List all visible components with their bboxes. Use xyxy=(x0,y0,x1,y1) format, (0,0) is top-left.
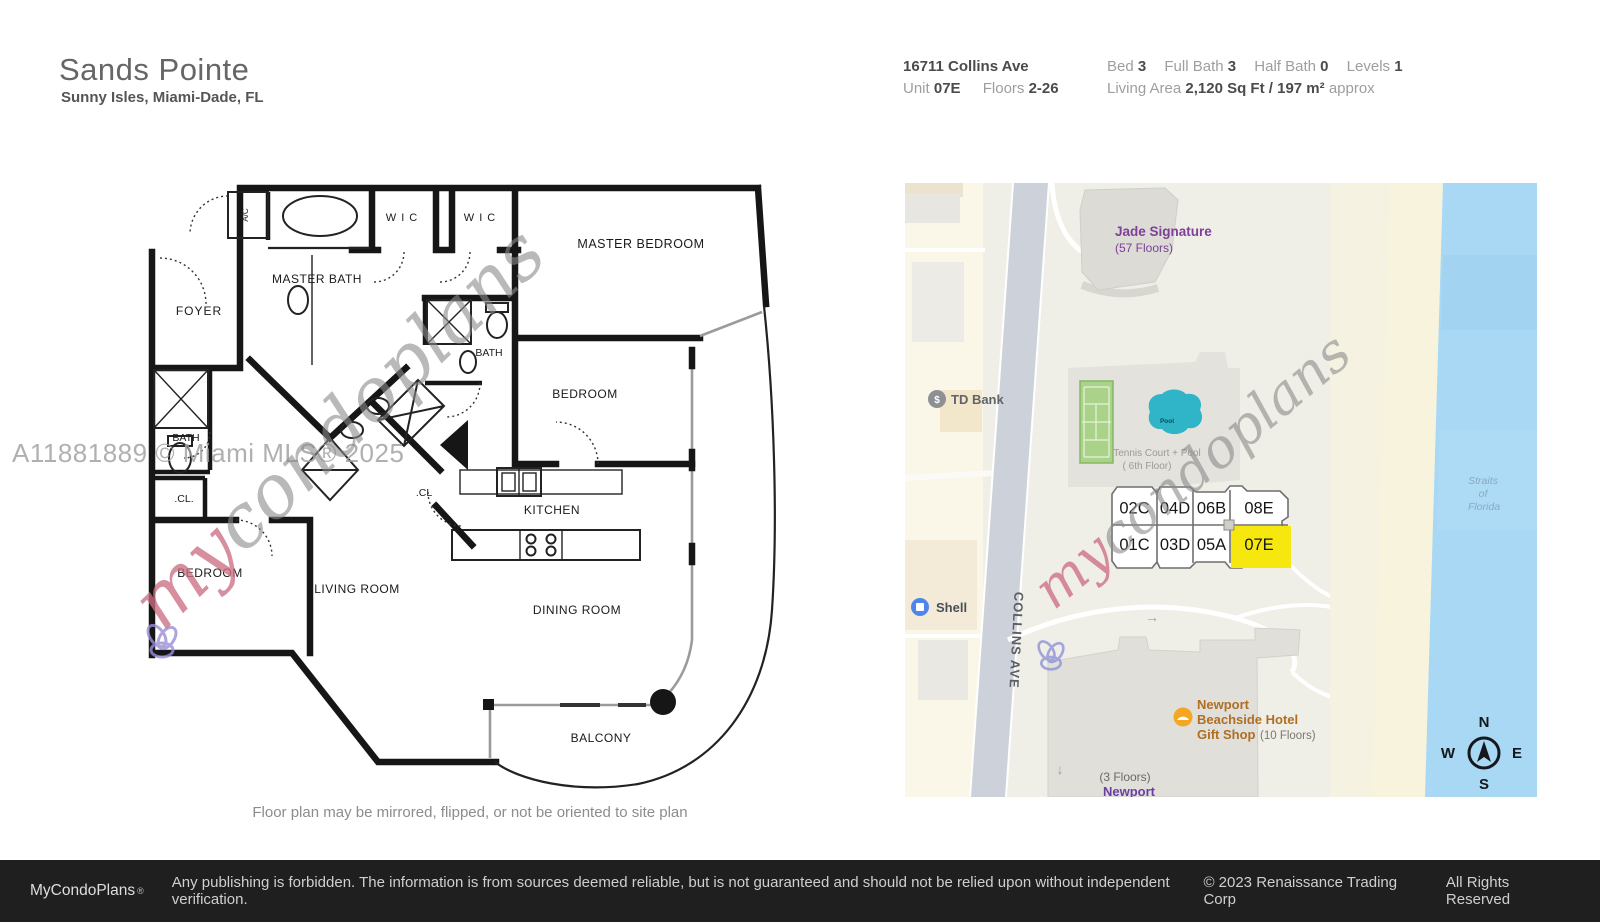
label: of xyxy=(1479,488,1489,500)
label: MASTER BATH xyxy=(272,272,362,286)
living-area-separator: / xyxy=(1269,80,1273,97)
footer-copyright: © 2023 Renaissance Trading Corp xyxy=(1203,874,1423,908)
label: BALCONY xyxy=(571,731,632,745)
label: TD Bank xyxy=(951,392,1005,407)
floors-label: Floors xyxy=(983,80,1025,97)
footer-brand: MyCondoPlans xyxy=(30,882,135,900)
burner xyxy=(527,547,536,556)
label: Pool xyxy=(1160,418,1174,425)
label: E xyxy=(1512,745,1522,762)
full-bath-value: 3 xyxy=(1228,58,1236,75)
unit-cell-label: 02C xyxy=(1119,500,1149,518)
label: Newport xyxy=(1103,784,1156,797)
label: N xyxy=(1479,714,1490,731)
label: Shell xyxy=(936,600,967,615)
unit-cell-label: 08E xyxy=(1244,500,1273,518)
label: BATH xyxy=(475,347,502,359)
sink xyxy=(460,351,476,373)
label: $ xyxy=(934,395,940,406)
registered-mark: ® xyxy=(137,886,144,896)
label: ↓ xyxy=(1057,761,1064,777)
wall-fill xyxy=(440,420,468,470)
label: Straits xyxy=(1468,475,1499,487)
footer-disclaimer: Any publishing is forbidden. The informa… xyxy=(172,874,1204,908)
vanity-sink xyxy=(341,422,363,438)
sink xyxy=(288,286,308,314)
living-area-approx: approx xyxy=(1329,80,1375,97)
balcony-post xyxy=(483,699,494,710)
label: MASTER BEDROOM xyxy=(577,237,704,251)
toilet-tank xyxy=(486,303,508,312)
living-area-value: 2,120 Sq Ft xyxy=(1185,80,1264,97)
label: Tennis Court + Pool xyxy=(1113,448,1201,459)
floorplan-walls xyxy=(152,188,766,762)
balcony-outline xyxy=(495,306,775,787)
burner xyxy=(547,535,556,544)
mls-watermark: A11881889 © Miami MLS® 2025 xyxy=(12,438,404,469)
label: (3 Floors) xyxy=(1099,770,1150,784)
label: Newport xyxy=(1197,697,1250,712)
label: BEDROOM xyxy=(552,387,618,401)
fridge-door xyxy=(523,473,536,491)
living-area-label: Living Area xyxy=(1107,80,1181,97)
floor-plan: MASTER BEDROOMMASTER BATHW I CW I CA/CFO… xyxy=(140,180,800,812)
floors-value: 2-26 xyxy=(1029,80,1059,97)
unit-value: 07E xyxy=(934,80,961,97)
shower-x xyxy=(427,300,471,344)
angled-closet xyxy=(378,380,444,446)
label: (10 Floors) xyxy=(1260,730,1316,742)
label: S xyxy=(1479,776,1489,793)
elevator-core xyxy=(1224,520,1234,530)
burner xyxy=(527,535,536,544)
label: → xyxy=(1145,609,1159,625)
unit-cell-label: 05A xyxy=(1197,536,1226,554)
label: W xyxy=(1441,745,1456,762)
full-bath-label: Full Bath xyxy=(1164,58,1223,75)
balcony-column xyxy=(650,689,676,715)
bed-label: Bed xyxy=(1107,58,1134,75)
label: .CL. xyxy=(174,493,193,505)
label: ( 6th Floor) xyxy=(1123,461,1172,472)
label: (57 Floors) xyxy=(1115,241,1173,255)
room-labels: MASTER BEDROOMMASTER BATHW I CW I CA/CFO… xyxy=(172,208,704,745)
unit-cell-label: 03D xyxy=(1160,536,1190,554)
label: DINING ROOM xyxy=(533,603,621,617)
address-block: 16711 Collins Ave Unit 07E Floors 2-26 xyxy=(903,56,1059,100)
page-subtitle: Sunny Isles, Miami-Dade, FL xyxy=(61,89,264,106)
shower-x xyxy=(154,370,208,428)
label: Beachside Hotel xyxy=(1197,712,1298,727)
label: FOYER xyxy=(176,304,222,318)
stove xyxy=(520,530,562,560)
label: Gift Shop xyxy=(1197,727,1256,742)
floorplan-disclaimer: Floor plan may be mirrored, flipped, or … xyxy=(140,804,800,821)
page-title: Sands Pointe xyxy=(59,52,249,88)
label: W I C xyxy=(386,212,419,224)
levels-label: Levels xyxy=(1347,58,1390,75)
label: KITCHEN xyxy=(524,503,580,517)
burner xyxy=(547,547,556,556)
unit-label: Unit xyxy=(903,80,930,97)
toilet xyxy=(487,312,507,338)
footer-rights: All Rights Reserved xyxy=(1446,874,1572,908)
half-bath-label: Half Bath xyxy=(1254,58,1316,75)
half-bath-value: 0 xyxy=(1320,58,1328,75)
address: 16711 Collins Ave xyxy=(903,58,1029,75)
pool xyxy=(1149,390,1202,435)
label: LIVING ROOM xyxy=(314,582,400,596)
unit-cell-label: 06B xyxy=(1197,500,1226,518)
label: W I C xyxy=(464,212,497,224)
label: Jade Signature xyxy=(1115,224,1212,239)
site-map: 02C04D06B08E01C03D05A07E Jade Signature(… xyxy=(905,183,1537,797)
label: BEDROOM xyxy=(177,566,243,580)
label: A/C xyxy=(241,208,250,222)
label: .CL xyxy=(416,487,433,499)
label: Florida xyxy=(1468,501,1500,513)
watermark-flower-icon xyxy=(145,624,179,662)
levels-value: 1 xyxy=(1394,58,1402,75)
unit-cell-label: 07E xyxy=(1244,536,1273,554)
unit-cell-label: 04D xyxy=(1160,500,1190,518)
footer-bar: MyCondoPlans® Any publishing is forbidde… xyxy=(0,860,1600,922)
specs-block: Bed 3 Full Bath 3 Half Bath 0 Levels 1 L… xyxy=(1107,56,1403,100)
watermark-flower-icon xyxy=(1036,640,1066,674)
bathtub xyxy=(283,196,357,236)
kitchen-island xyxy=(452,530,640,560)
bed-value: 3 xyxy=(1138,58,1146,75)
fridge-door xyxy=(502,473,515,491)
living-area-metric: 197 m² xyxy=(1277,80,1325,97)
unit-cell-label: 01C xyxy=(1119,536,1149,554)
